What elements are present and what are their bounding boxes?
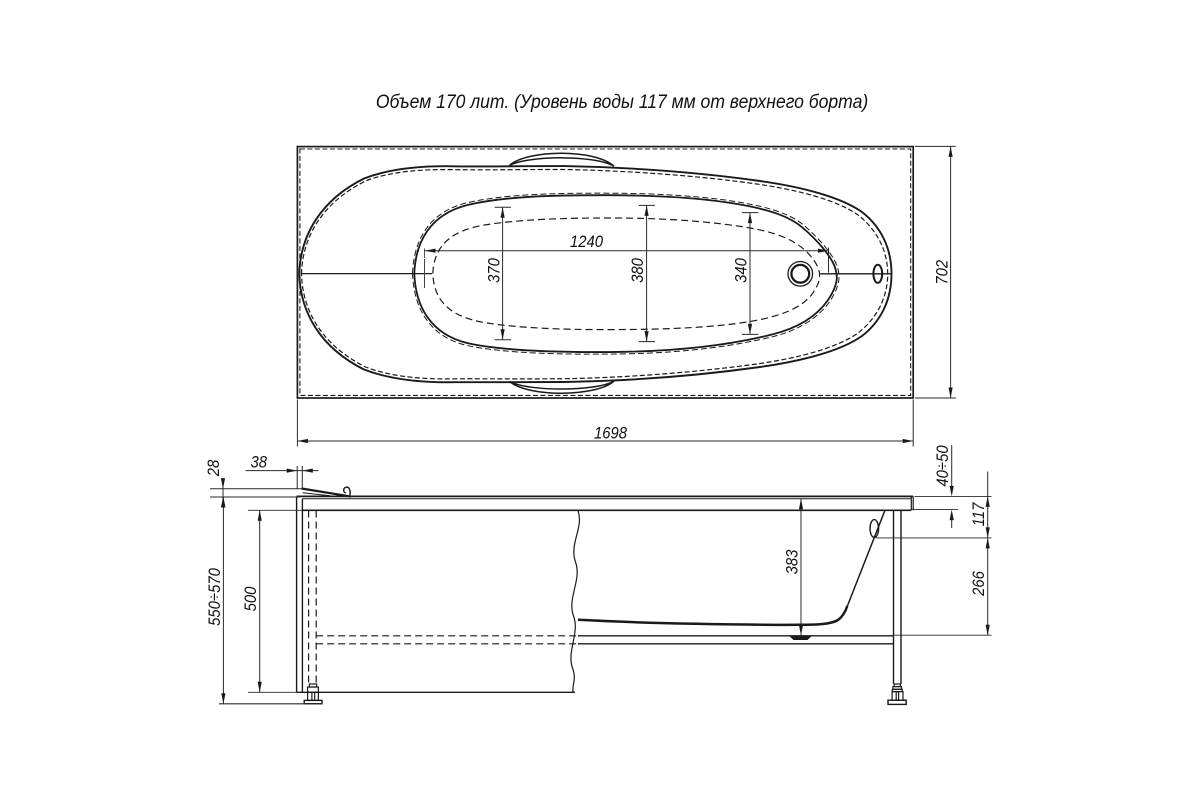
svg-text:40÷50: 40÷50 bbox=[935, 445, 953, 486]
svg-text:28: 28 bbox=[206, 459, 224, 477]
svg-text:702: 702 bbox=[934, 260, 952, 285]
svg-text:117: 117 bbox=[971, 501, 989, 526]
svg-text:500: 500 bbox=[243, 586, 261, 611]
svg-text:266: 266 bbox=[971, 571, 989, 597]
svg-text:383: 383 bbox=[784, 549, 802, 574]
svg-text:1698: 1698 bbox=[594, 425, 627, 443]
svg-text:370: 370 bbox=[486, 258, 504, 283]
svg-text:340: 340 bbox=[733, 258, 751, 283]
svg-text:1240: 1240 bbox=[570, 234, 603, 252]
svg-text:Объем 170 лит. (Уровень воды 1: Объем 170 лит. (Уровень воды 117 мм от в… bbox=[376, 90, 868, 112]
svg-text:550÷570: 550÷570 bbox=[206, 568, 224, 626]
svg-text:380: 380 bbox=[630, 258, 648, 283]
svg-text:38: 38 bbox=[250, 454, 267, 472]
